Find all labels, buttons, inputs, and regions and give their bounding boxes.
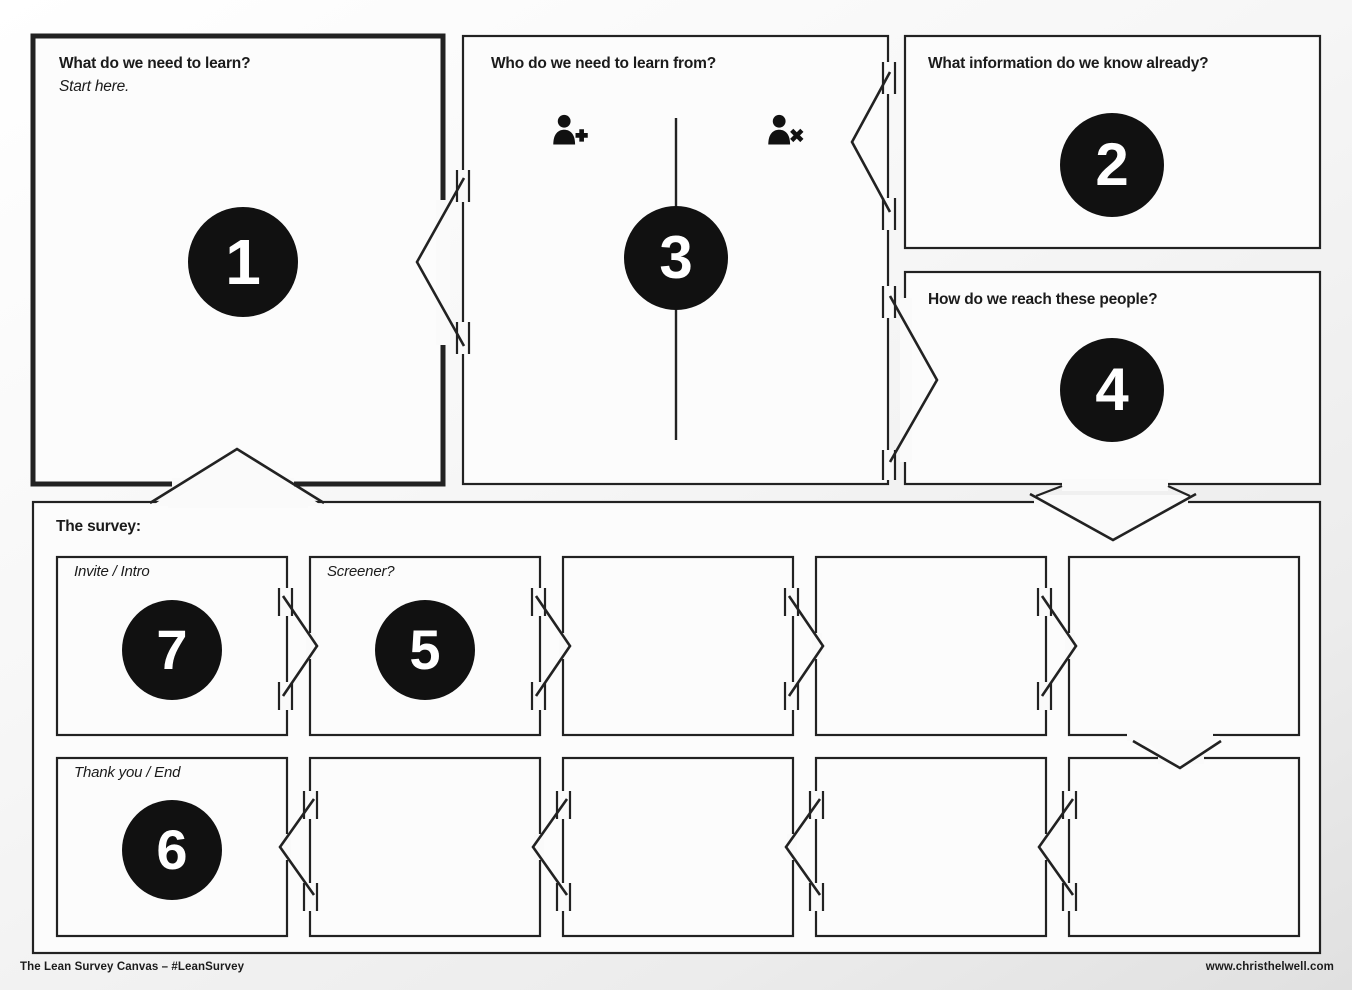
step-circle-5: 5 <box>375 600 475 700</box>
person-remove-icon <box>766 114 804 151</box>
know-box-title: What information do we know already? <box>928 55 1208 73</box>
survey-title: The survey: <box>56 518 141 536</box>
step-circle-6: 6 <box>122 800 222 900</box>
step-circle-7: 7 <box>122 600 222 700</box>
footer-credit: The Lean Survey Canvas – #LeanSurvey <box>20 961 244 973</box>
reach-box-title: How do we reach these people? <box>928 291 1157 309</box>
step-circle-1: 1 <box>188 207 298 317</box>
invite-intro-label: Invite / Intro <box>74 563 150 580</box>
learn-box-subtitle: Start here. <box>59 78 129 96</box>
person-add-icon <box>551 114 589 151</box>
step-circle-3: 3 <box>624 206 728 310</box>
footer-url: www.christhelwell.com <box>1206 961 1334 973</box>
who-box-title: Who do we need to learn from? <box>491 55 716 73</box>
thank-you-label: Thank you / End <box>74 764 180 781</box>
lean-survey-canvas: What do we need to learn? Start here. 1 … <box>0 0 1352 990</box>
step-circle-2: 2 <box>1060 113 1164 217</box>
step-circle-4: 4 <box>1060 338 1164 442</box>
learn-box-title: What do we need to learn? <box>59 55 250 73</box>
screener-label: Screener? <box>327 563 394 580</box>
